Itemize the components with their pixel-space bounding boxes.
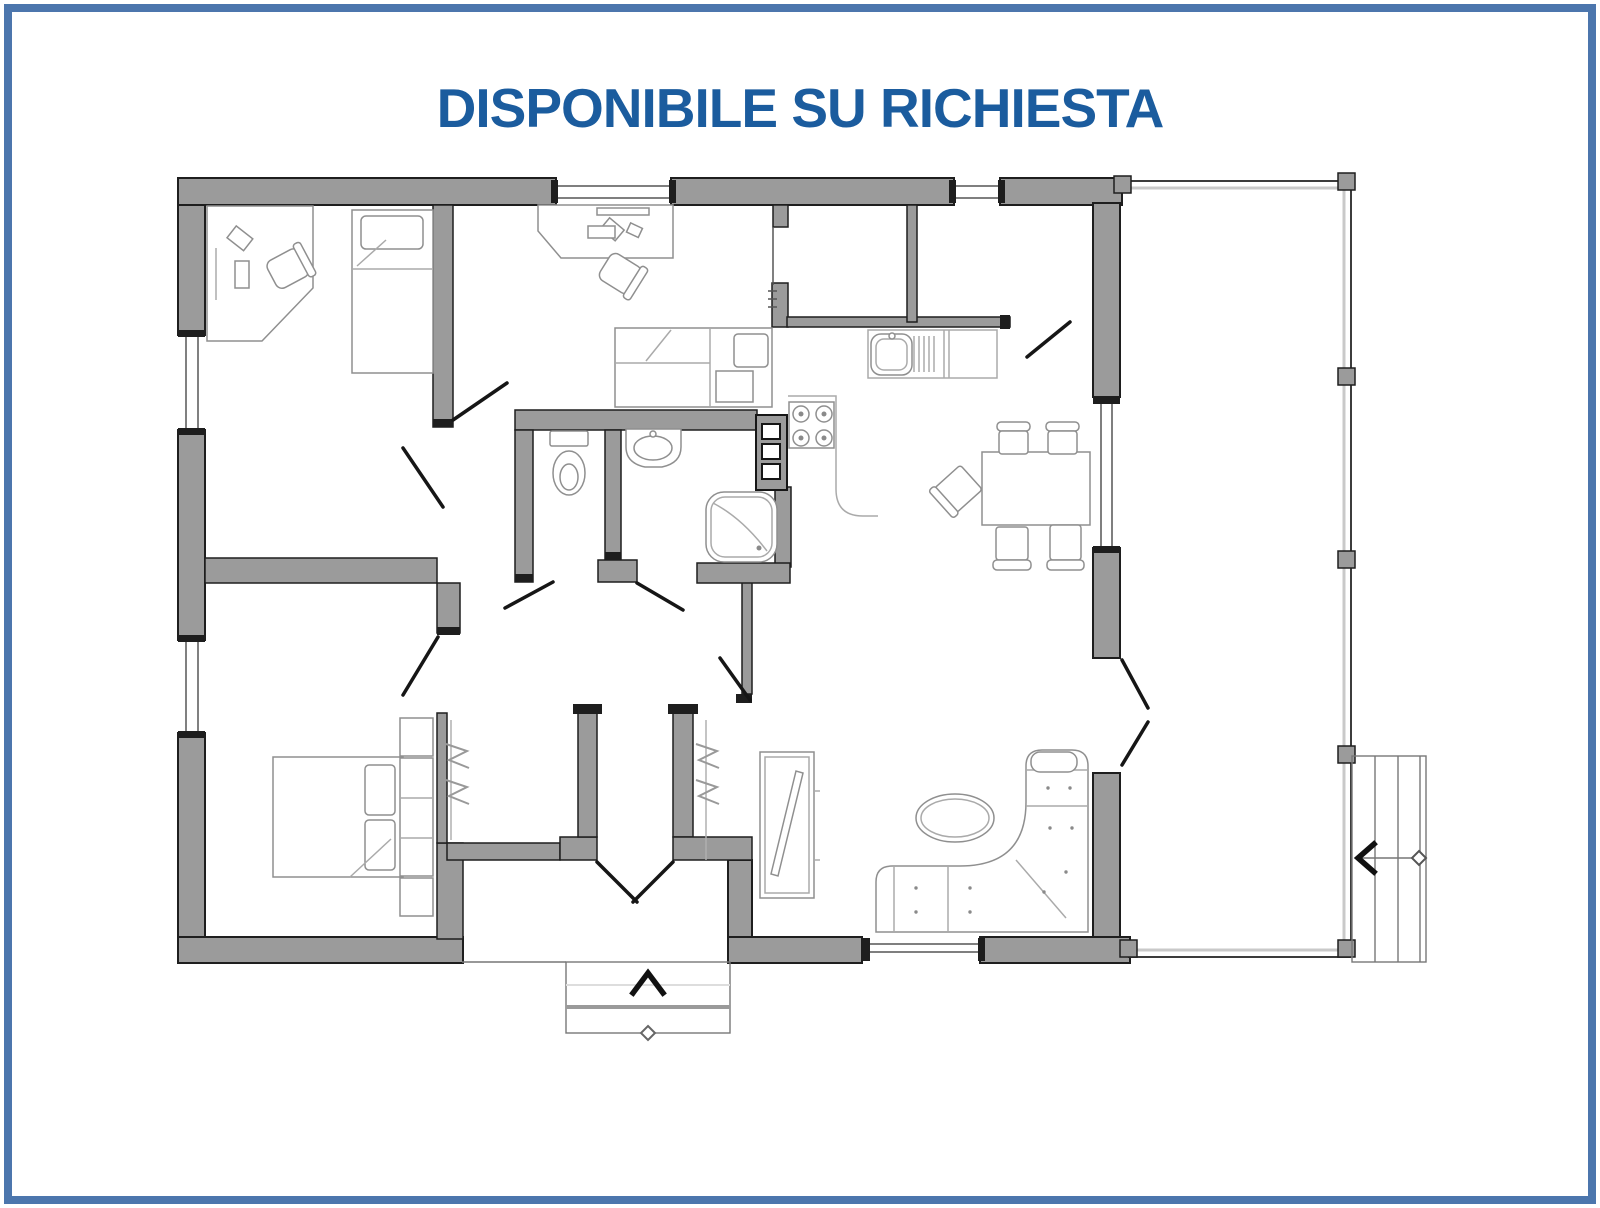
dining-chair-icon [1046, 422, 1079, 454]
door-swing-icon [597, 862, 637, 902]
terrace-post-icon [1114, 173, 1355, 957]
door-swing-icon [453, 383, 507, 420]
door-swing-icon [403, 448, 443, 507]
door-swing-icon [1027, 322, 1070, 357]
door-swing-icon [403, 637, 438, 695]
entry-direction-arrow-icon [633, 973, 663, 993]
floor-plan-drawing [0, 0, 1600, 1208]
window-icon [949, 180, 1005, 203]
headboard-cabinets-icon [400, 718, 433, 916]
door-swing-icon [1122, 660, 1148, 708]
toilet-icon [550, 431, 588, 495]
shower-icon [706, 492, 777, 562]
dining-chair-icon [928, 464, 983, 519]
coffee-table-icon [916, 794, 994, 842]
single-bed-icon [352, 210, 433, 373]
corner-sofa-icon [876, 750, 1088, 932]
stove-icon [789, 402, 834, 448]
washbasin-icon [626, 429, 681, 467]
appliance-column-icon [756, 415, 787, 490]
dining-chair-icon [997, 422, 1030, 454]
window-icon [1093, 397, 1120, 553]
entry-steps-icon [462, 962, 730, 1040]
double-bed-icon [273, 757, 403, 877]
external-stairs-icon [1352, 756, 1426, 962]
wardrobe-rail-icon [446, 720, 469, 840]
bedroom-desk-icon [538, 205, 673, 258]
floor-plan-page: DISPONIBILE SU RICHIESTA [0, 0, 1600, 1208]
window-icon [178, 330, 205, 435]
dining-table-icon [982, 452, 1090, 525]
terrace [1114, 173, 1355, 957]
door-swing-icon [637, 583, 683, 610]
dining-chair-icon [1047, 525, 1084, 570]
window-icon [178, 635, 205, 738]
door-swing-icon [633, 862, 673, 902]
dining-chair-icon [993, 527, 1031, 570]
window-icon [863, 938, 985, 961]
tv-sideboard-icon [760, 752, 820, 898]
window-icon [551, 180, 676, 203]
door-swing-icon [1122, 722, 1148, 765]
door-swing-icon [505, 582, 553, 608]
single-bed-icon [615, 328, 772, 407]
kitchen-sink-icon [871, 333, 912, 375]
drainer-icon [914, 336, 934, 372]
